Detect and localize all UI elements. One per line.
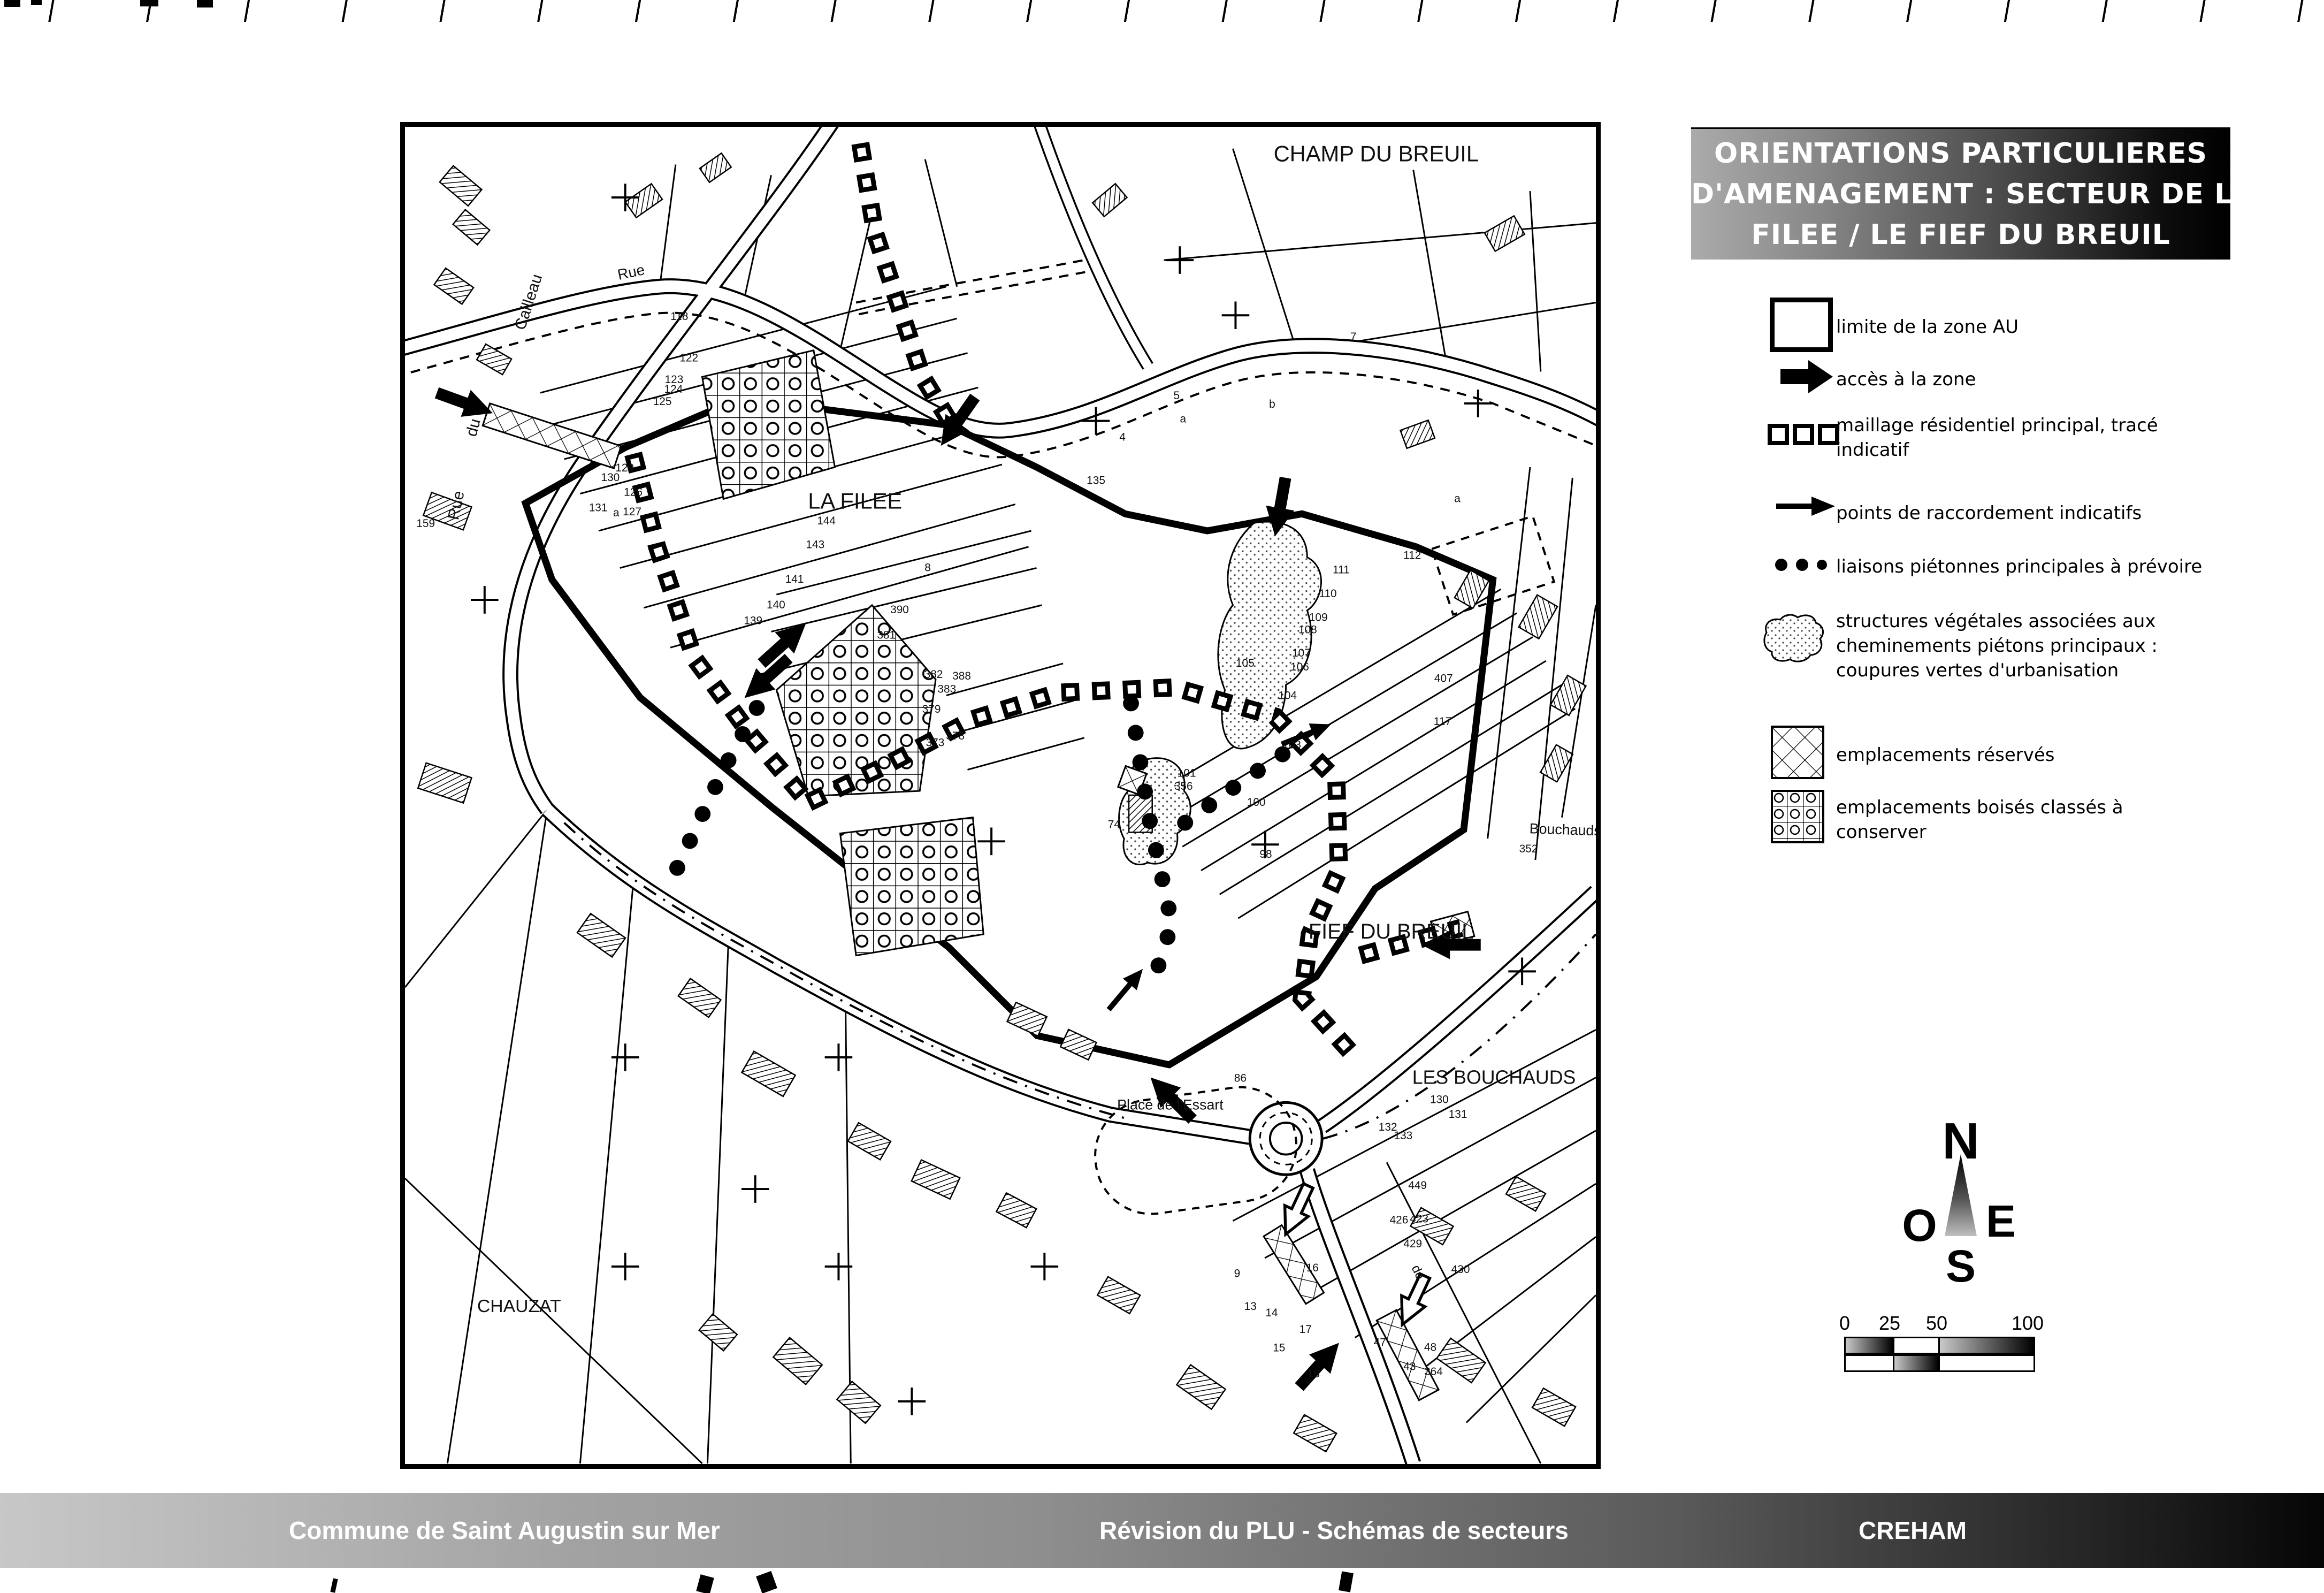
map-parcel-number: 430 <box>1451 1263 1470 1276</box>
map-parcel-number: 423 <box>1410 1213 1428 1225</box>
survey-cross <box>898 1388 926 1415</box>
map-parcel-number: 7 <box>1350 331 1357 343</box>
map-parcel-number: a <box>1180 413 1186 425</box>
compass-south-label: S <box>1937 1240 1985 1292</box>
legend-label-zone-au: limite de la zone AU <box>1836 315 2019 339</box>
map-parcel-number: 112 <box>1403 550 1421 562</box>
edge-fragment <box>756 1571 777 1593</box>
map-parcel-number: a <box>613 507 620 519</box>
edge-fragment <box>696 1574 714 1593</box>
scalebar-tick-0: 0 <box>1839 1312 1850 1335</box>
map-parcel-number: 407 <box>1434 673 1453 685</box>
legend-label-structures: structures végétales associées aux chemi… <box>1836 609 2158 683</box>
roads <box>400 122 1601 1464</box>
map-place-label: LA FILEE <box>808 488 902 513</box>
map-parcel-number: 125 <box>653 395 672 408</box>
map-parcel-number: 101 <box>1178 767 1196 779</box>
map-place-label: CHAUZAT <box>477 1296 561 1316</box>
legend-label-liaisons: liaisons piétonnes principales à prévoir… <box>1836 554 2202 579</box>
map-street-label: Rue <box>616 261 646 283</box>
legend-squares-chain-icon <box>1768 424 1839 445</box>
scalebar-tick-25: 25 <box>1879 1312 1900 1335</box>
map-parcel-number: 352 <box>1519 843 1538 855</box>
map-parcel-number: 126 <box>624 486 643 499</box>
bottom-edge-fragments <box>0 0 2324 22</box>
legend-swatch-zone-au <box>1770 298 1833 352</box>
map-parcel-number: 379 <box>922 703 941 715</box>
map-parcel-number: 4 <box>1119 431 1126 443</box>
map-parcel-number: 429 <box>1403 1238 1422 1250</box>
map-parcel-number: 98 <box>1259 848 1272 860</box>
map-parcel-number: 127 <box>623 506 641 518</box>
map-parcel-number: a <box>1454 492 1461 505</box>
map-parcel-number: 141 <box>785 573 804 585</box>
legend-wooded-icon <box>1771 790 1824 846</box>
legend-thin-arrow-icon <box>1774 494 1839 521</box>
compass-west-label: O <box>1898 1200 1941 1252</box>
map-parcel-number: 131 <box>589 501 608 514</box>
survey-cross <box>825 1043 853 1071</box>
legend-vegetal-blob-icon <box>1759 611 1834 669</box>
map-parcel-number: 104 <box>1278 689 1297 702</box>
survey-cross <box>741 1175 769 1203</box>
map-parcel-number: 9 <box>1234 1268 1241 1280</box>
legend-crosshatch-icon <box>1771 726 1824 782</box>
map-parcel-number: 16 <box>1306 1262 1319 1274</box>
map-parcel-number: 86 <box>1234 1072 1247 1085</box>
map-parcel-number: 74 <box>1108 819 1120 831</box>
map-parcel-number: 47 <box>1374 1337 1386 1349</box>
footer-document: Révision du PLU - Schémas de secteurs <box>1099 1493 1527 1568</box>
survey-cross <box>1464 390 1492 417</box>
title-block: ORIENTATIONS PARTICULIERES D'AMENAGEMENT… <box>1691 127 2230 260</box>
map-parcel-number: 100 <box>1247 796 1266 809</box>
scalebar-tick-50: 50 <box>1926 1312 1947 1335</box>
map-parcel-number: 14 <box>1265 1307 1278 1319</box>
legend-access-arrow-icon <box>1777 357 1836 399</box>
edge-fragment <box>4 0 20 7</box>
map-parcel-number: 109 <box>1309 612 1328 624</box>
edge-fragment <box>1339 1571 1354 1592</box>
cadastral-map: CHAMP DU BREUILLA FILEEFIEF DU BREUILLES… <box>400 122 1601 1469</box>
map-parcel-number: b <box>1269 398 1275 410</box>
map-place-label: FIEF DU BREUIL <box>1309 920 1473 943</box>
map-parcel-number: 426 <box>1390 1214 1409 1226</box>
map-street-label: Bouchauds <box>1529 820 1601 839</box>
map-parcel-number: 5 <box>1174 390 1180 402</box>
map-parcel-number: 8 <box>924 561 931 574</box>
map-parcel-number: 139 <box>744 615 762 627</box>
map-parcel-number: 130 <box>601 471 620 484</box>
map-parcel-number: 105 <box>1236 657 1255 669</box>
map-parcel-number: 15 <box>1273 1342 1285 1354</box>
map-parcel-number: 43 <box>1403 1360 1416 1373</box>
map-parcel-number: 143 <box>806 539 824 551</box>
legend-label-maillage: maillage résidentiel principal, tracé in… <box>1836 413 2158 462</box>
survey-cross <box>977 828 1005 856</box>
map-parcel-number: 383 <box>937 683 956 696</box>
map-parcel-number: 118 <box>670 310 688 323</box>
legend-label-reserves: emplacements réservés <box>1836 743 2054 767</box>
map-place-label: CHAMP DU BREUIL <box>1274 141 1479 166</box>
scalebar-row-bottom <box>1844 1354 2035 1372</box>
scalebar-tick-100: 100 <box>2012 1312 2044 1335</box>
legend-label-access: accès à la zone <box>1836 367 1976 392</box>
map-parcel-number: 140 <box>767 599 785 611</box>
map-parcel-number: 103 <box>1282 739 1301 751</box>
survey-cross <box>471 586 499 614</box>
map-parcel-number: 111 <box>1333 563 1350 576</box>
compass-east-label: E <box>1979 1195 2022 1247</box>
legend-label-boises: emplacements boisés classés à conserver <box>1836 795 2123 844</box>
survey-cross <box>1222 301 1250 329</box>
survey-cross <box>1031 1253 1059 1281</box>
map-parcel-number: 133 <box>1394 1130 1413 1142</box>
map-parcel-number: 449 <box>1408 1179 1427 1192</box>
map-parcel-number: 130 <box>1430 1093 1449 1106</box>
edge-fragment <box>330 1578 338 1592</box>
map-parcel-number: 378 <box>946 730 965 742</box>
title-line: D'AMENAGEMENT : SECTEUR DE LA <box>1691 174 2230 215</box>
map-parcel-number: 13 <box>1244 1300 1257 1313</box>
map-parcel-number: 388 <box>952 670 971 682</box>
map-parcel-number: 18 <box>1308 1368 1320 1380</box>
map-parcel-number: 390 <box>890 604 909 616</box>
zone-au-boundary <box>525 400 1493 1065</box>
map-parcel-number: 117 <box>1434 715 1451 728</box>
map-parcel-number: 364 <box>1424 1366 1443 1378</box>
survey-cross <box>611 1253 639 1281</box>
map-parcel-number: 131 <box>1449 1108 1467 1121</box>
map-parcel-number: 135 <box>1087 475 1105 487</box>
map-parcel-number: 144 <box>817 515 836 527</box>
survey-cross <box>1166 246 1194 274</box>
compass-needle <box>1937 1153 1985 1239</box>
map-parcel-number: 122 <box>679 352 698 364</box>
map-parcel-number: 108 <box>1298 623 1317 636</box>
map-parcel-number: 373 <box>926 737 945 749</box>
map-parcel-number: 382 <box>924 668 943 681</box>
footer-bar: Commune de Saint Augustin sur Mer Révisi… <box>0 1493 2324 1568</box>
plan-sheet: PRE GOGUET EST <box>0 0 2324 1593</box>
map-place-label: LES BOUCHAUDS <box>1412 1067 1576 1088</box>
map-parcel-number: 106 <box>1290 661 1309 673</box>
edge-fragment <box>140 0 158 6</box>
footer-commune: Commune de Saint Augustin sur Mer <box>289 1493 717 1568</box>
map-parcel-number: 48 <box>1424 1342 1436 1354</box>
map-parcel-number: 124 <box>664 383 683 395</box>
legend-label-raccordement: points de raccordement indicatifs <box>1836 501 2142 525</box>
map-parcel-number: 356 <box>1174 780 1193 792</box>
footer-author: CREHAM <box>1806 1493 2020 1568</box>
map-parcel-number: 110 <box>1319 588 1336 600</box>
map-street-label: du <box>462 417 484 439</box>
title-line: ORIENTATIONS PARTICULIERES <box>1691 133 2230 174</box>
scalebar-row-top <box>1844 1337 2035 1354</box>
map-parcel-number: 17 <box>1299 1323 1312 1336</box>
edge-fragment <box>31 0 42 5</box>
legend-dots-icon <box>1775 559 1827 571</box>
map-parcel-number: 381 <box>877 629 896 641</box>
title-line: FILEE / LE FIEF DU BREUIL <box>1691 215 2230 255</box>
edge-fragment <box>197 0 213 7</box>
survey-cross <box>611 1043 639 1071</box>
map-place-label: Place de l'Essart <box>1117 1096 1224 1112</box>
map-parcel-number: 159 <box>416 517 435 530</box>
map-parcel-number: 107 <box>1292 647 1311 659</box>
